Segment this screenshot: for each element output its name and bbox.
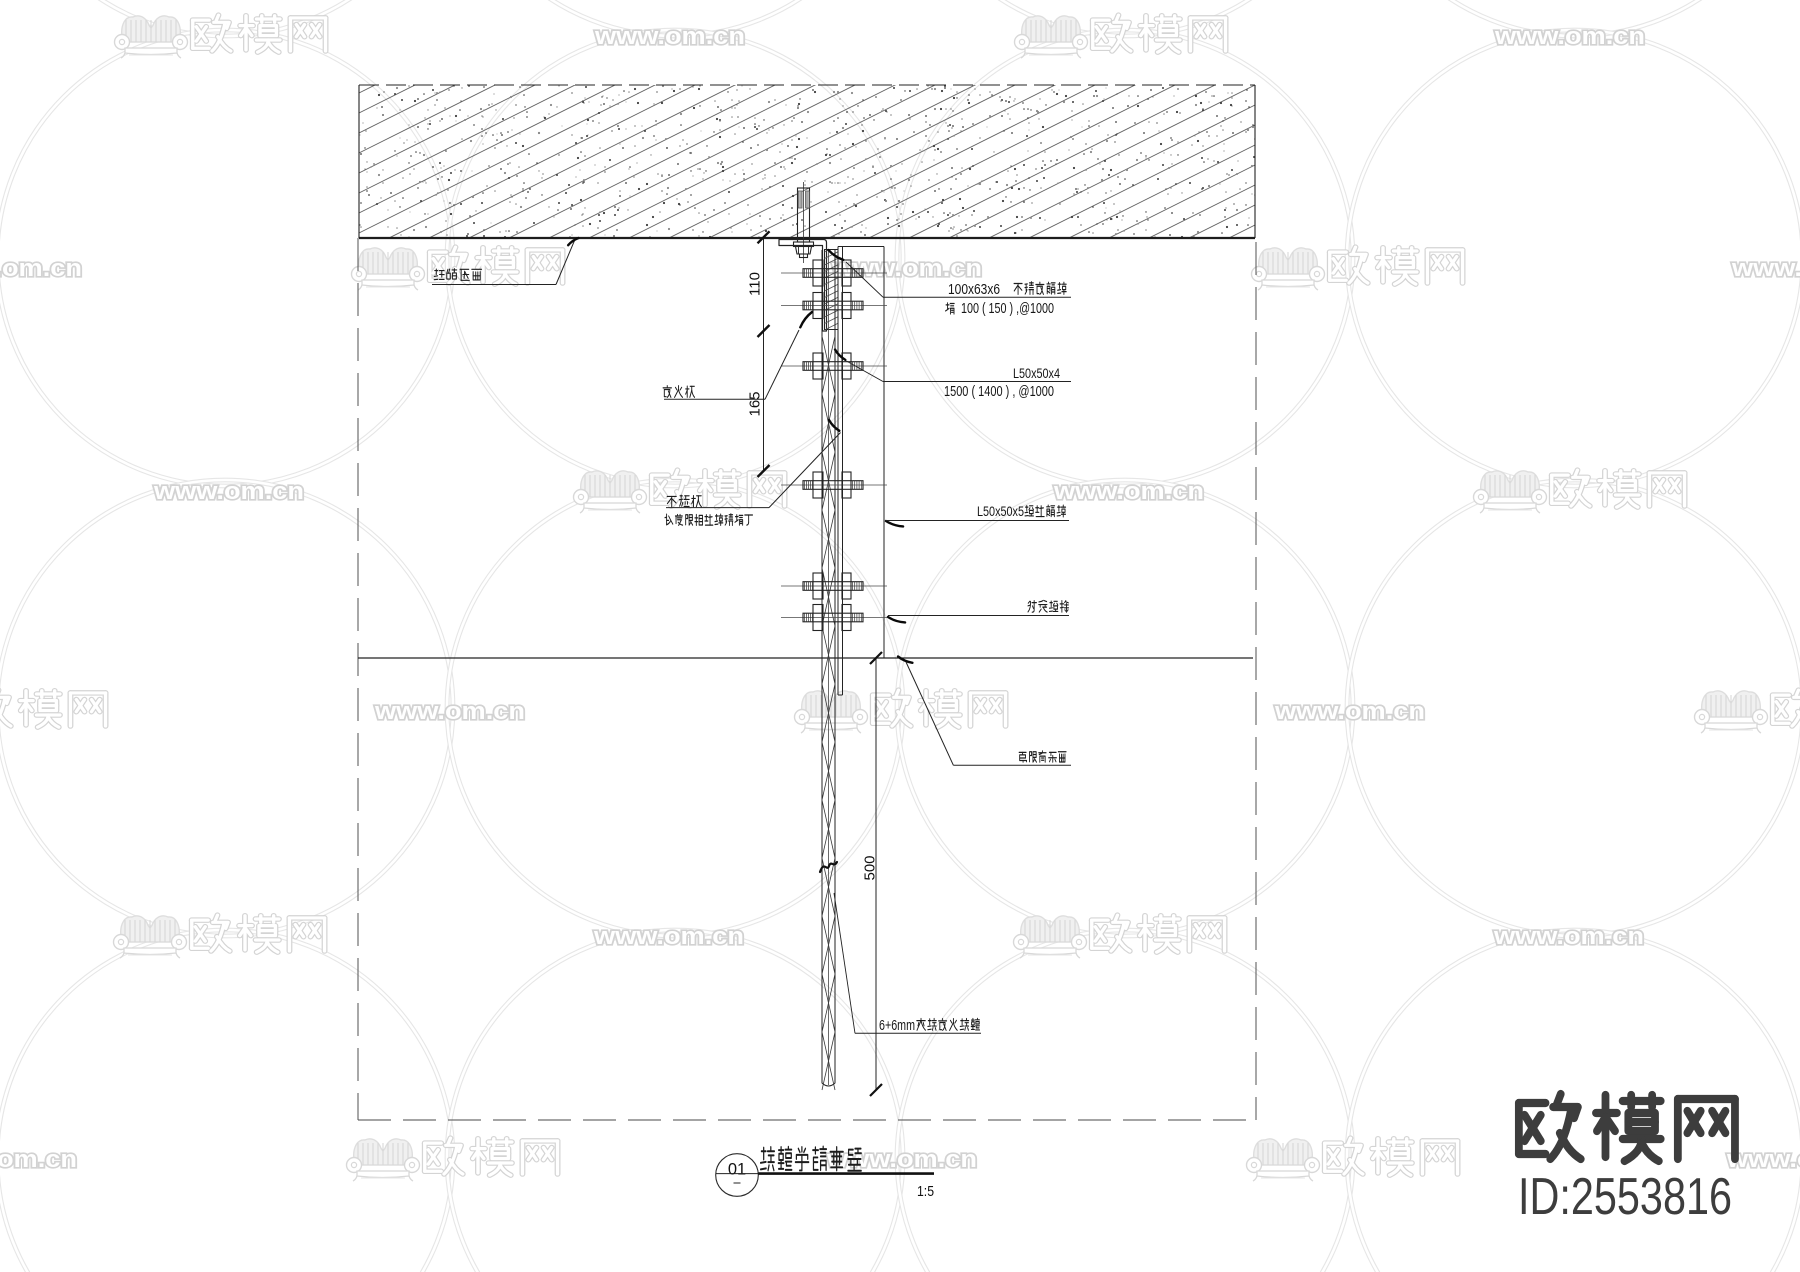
svg-text:L50x50x4: L50x50x4	[1013, 365, 1060, 381]
svg-text:165: 165	[747, 391, 764, 416]
svg-text:www.om.cn: www.om.cn	[1731, 255, 1800, 282]
svg-text:www.om.cn: www.om.cn	[0, 1146, 77, 1173]
svg-text:www.om.cn: www.om.cn	[0, 255, 82, 282]
svg-text:500: 500	[862, 855, 879, 880]
svg-text:www.om.cn: www.om.cn	[1494, 23, 1645, 50]
svg-text:www.om.cn: www.om.cn	[1493, 923, 1644, 950]
svg-text:110: 110	[747, 272, 764, 296]
svg-text:www.om.cn: www.om.cn	[153, 478, 304, 505]
svg-text:6+6mm: 6+6mm	[879, 1018, 915, 1034]
svg-text:1500 ( 1400 ) , @1000: 1500 ( 1400 ) , @1000	[944, 384, 1054, 400]
svg-text:ID:2553816: ID:2553816	[1518, 1168, 1732, 1226]
svg-text:www.om.cn: www.om.cn	[593, 923, 744, 950]
svg-text:www.om.cn: www.om.cn	[594, 23, 745, 50]
svg-text:www.om.cn: www.om.cn	[1274, 698, 1425, 725]
svg-text:L50x50x5: L50x50x5	[977, 503, 1024, 519]
svg-text:01: 01	[728, 1161, 746, 1179]
svg-text:1:5: 1:5	[917, 1183, 934, 1200]
svg-text:100x63x6: 100x63x6	[948, 282, 1000, 298]
svg-text:www.om.cn: www.om.cn	[1053, 478, 1204, 505]
svg-text:www.om.cn: www.om.cn	[374, 698, 525, 725]
svg-text:100 ( 150 ) ,@1000: 100 ( 150 ) ,@1000	[961, 301, 1054, 317]
